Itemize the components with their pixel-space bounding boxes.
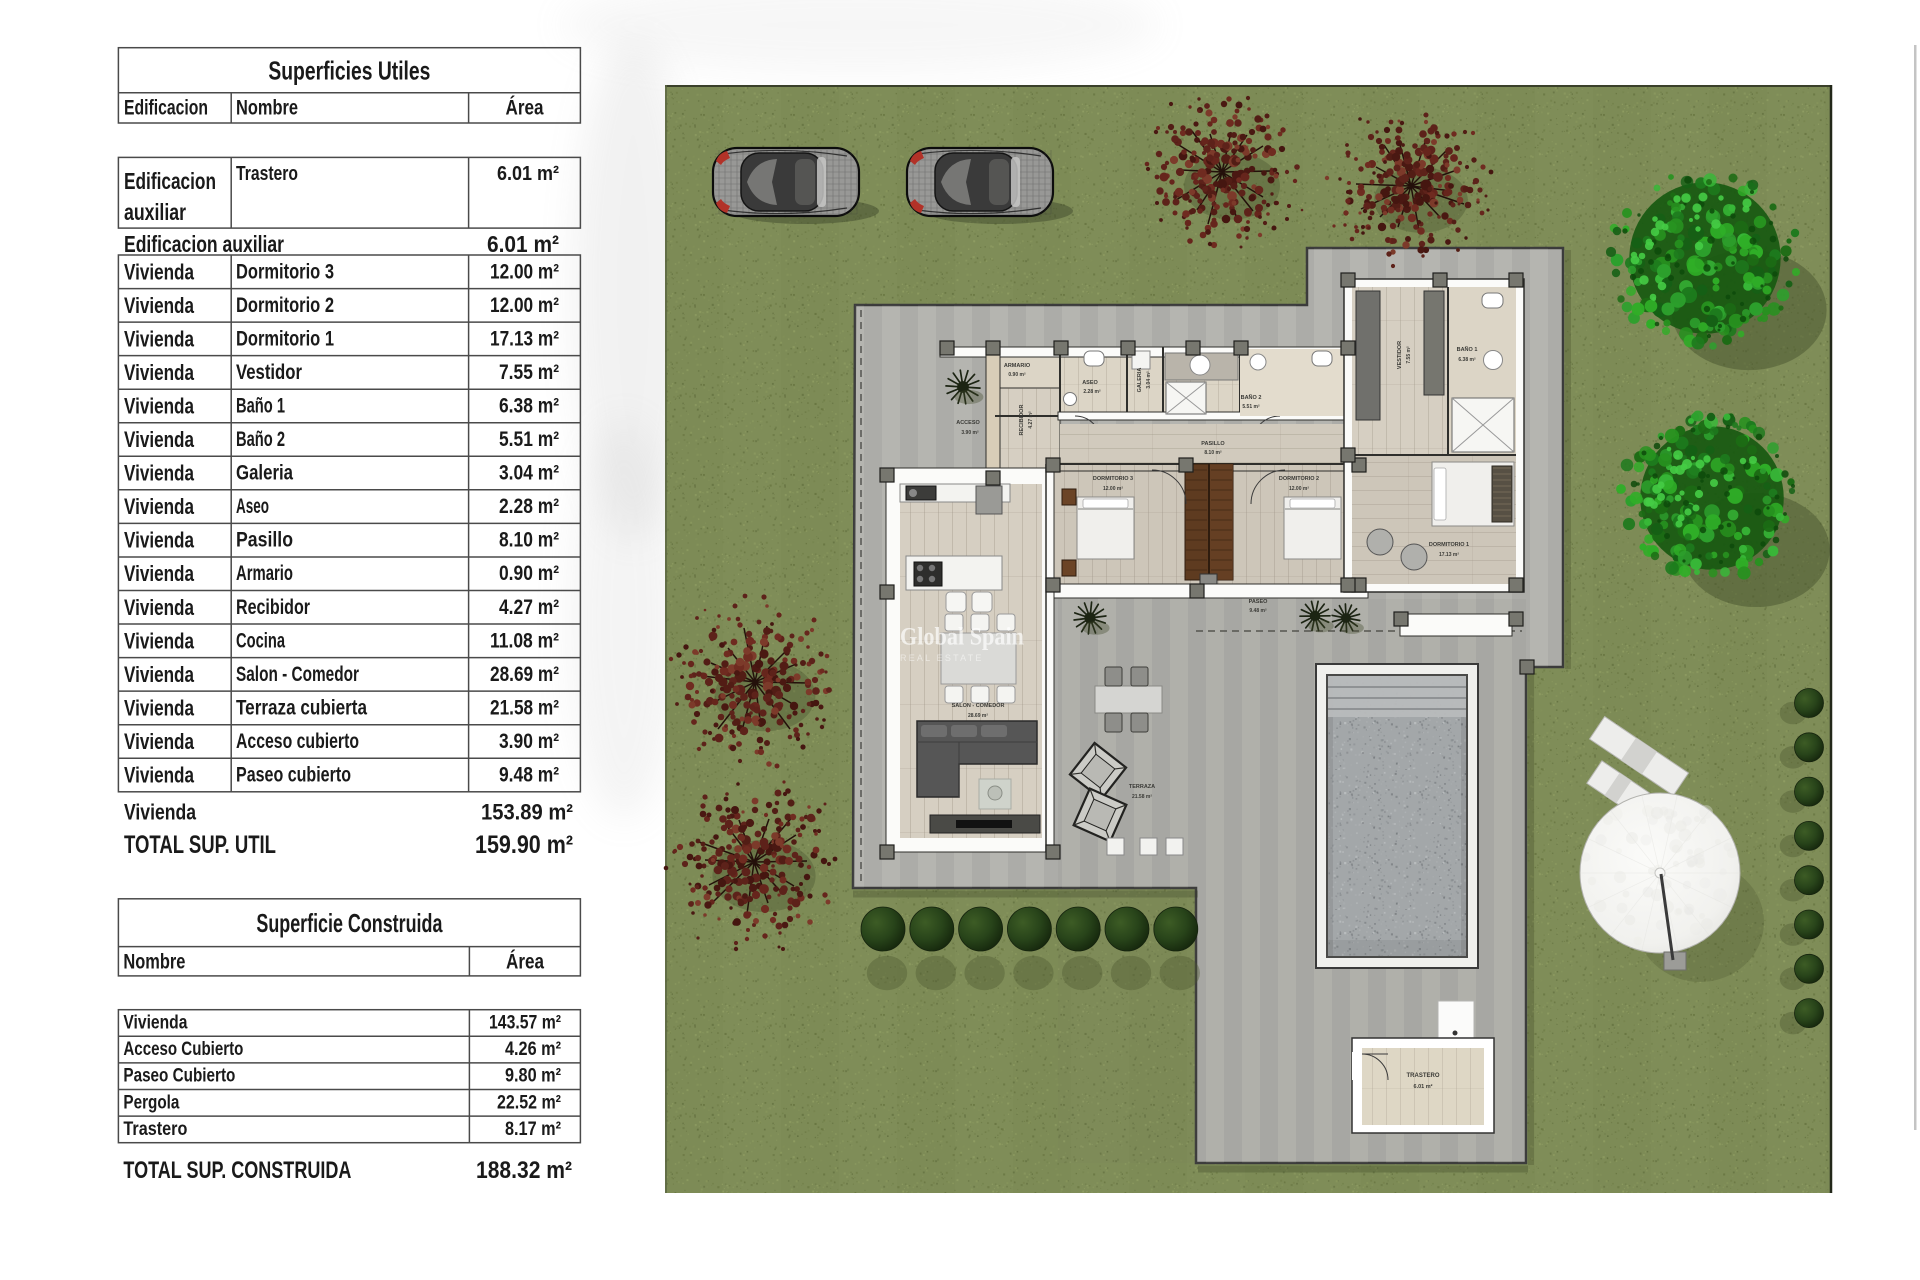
svg-text:6.01 m²: 6.01 m² (1414, 1083, 1433, 1090)
svg-text:GALERIA: GALERIA (1137, 368, 1143, 393)
svg-text:TERRAZA: TERRAZA (1129, 784, 1155, 790)
svg-text:28.69 m²: 28.69 m² (490, 663, 559, 686)
svg-text:12.00 m²: 12.00 m² (490, 260, 559, 283)
svg-text:Trastero: Trastero (236, 163, 298, 185)
svg-text:TOTAL SUP. CONSTRUIDA: TOTAL SUP. CONSTRUIDA (123, 1157, 351, 1184)
svg-text:21.58 m²: 21.58 m² (1132, 794, 1152, 800)
svg-text:2.28 m²: 2.28 m² (1083, 389, 1101, 395)
svg-text:6.01 m²: 6.01 m² (497, 163, 559, 185)
svg-text:Edificacion auxiliar: Edificacion auxiliar (124, 231, 284, 257)
svg-text:0.90 m²: 0.90 m² (1008, 372, 1026, 378)
svg-text:17.13 m²: 17.13 m² (490, 327, 559, 350)
svg-text:143.57 m²: 143.57 m² (489, 1013, 561, 1034)
svg-text:Área: Área (506, 950, 544, 973)
svg-text:Dormitorio 2: Dormitorio 2 (236, 294, 334, 317)
svg-text:auxiliar: auxiliar (124, 199, 186, 225)
svg-text:22.52 m²: 22.52 m² (497, 1092, 561, 1113)
svg-text:Edificacion: Edificacion (124, 168, 216, 194)
svg-text:3.04 m²: 3.04 m² (499, 462, 559, 485)
svg-text:Vivienda: Vivienda (124, 662, 195, 687)
svg-text:6.01 m²: 6.01 m² (487, 231, 559, 257)
svg-text:Acceso Cubierto: Acceso Cubierto (123, 1039, 243, 1060)
svg-text:Galeria: Galeria (236, 462, 293, 485)
svg-text:7.55 m²: 7.55 m² (499, 361, 559, 384)
svg-text:5.51 m²: 5.51 m² (499, 428, 559, 451)
svg-text:Vivienda: Vivienda (124, 729, 195, 754)
svg-text:TOTAL SUP. UTIL: TOTAL SUP. UTIL (124, 831, 276, 859)
svg-text:3.04 m²: 3.04 m² (1146, 371, 1152, 389)
svg-text:Vivienda: Vivienda (123, 1013, 187, 1034)
svg-text:Armario: Armario (236, 562, 293, 585)
svg-text:Vivienda: Vivienda (124, 595, 195, 620)
svg-text:4.27 m²: 4.27 m² (499, 596, 559, 619)
svg-text:Vivienda: Vivienda (124, 293, 195, 318)
svg-text:Vivienda: Vivienda (124, 494, 195, 519)
svg-text:Salon - Comedor: Salon - Comedor (236, 663, 359, 686)
svg-text:Recibidor: Recibidor (236, 596, 310, 619)
svg-text:Cocina: Cocina (236, 629, 285, 652)
svg-text:8.10 m²: 8.10 m² (499, 529, 559, 552)
svg-text:DORMITORIO 3: DORMITORIO 3 (1093, 476, 1133, 482)
svg-text:PASILLO: PASILLO (1201, 441, 1225, 447)
svg-text:Vivienda: Vivienda (124, 326, 195, 351)
svg-text:12.00 m²: 12.00 m² (490, 294, 559, 317)
svg-text:VESTIDOR: VESTIDOR (1397, 341, 1403, 369)
svg-text:TRASTERO: TRASTERO (1407, 1073, 1440, 1079)
svg-text:7.55 m²: 7.55 m² (1406, 346, 1412, 364)
svg-text:6.38 m²: 6.38 m² (1458, 357, 1476, 363)
svg-text:BAÑO 1: BAÑO 1 (1457, 346, 1478, 353)
svg-text:Vivienda: Vivienda (124, 394, 195, 419)
svg-text:11.08 m²: 11.08 m² (490, 629, 559, 652)
svg-text:Vivienda: Vivienda (124, 259, 195, 284)
svg-text:5.51 m²: 5.51 m² (1242, 404, 1260, 410)
svg-text:DORMITORIO 2: DORMITORIO 2 (1279, 476, 1319, 482)
svg-text:Dormitorio 3: Dormitorio 3 (236, 260, 334, 283)
svg-text:DORMITORIO 1: DORMITORIO 1 (1429, 542, 1469, 548)
svg-text:Vivienda: Vivienda (124, 360, 195, 385)
svg-text:12.00 m²: 12.00 m² (1103, 486, 1123, 492)
svg-text:Vivienda: Vivienda (124, 528, 195, 553)
svg-text:Edificacion: Edificacion (124, 97, 208, 120)
svg-text:REAL ESTATE: REAL ESTATE (900, 653, 984, 663)
svg-text:2.28 m²: 2.28 m² (499, 495, 559, 518)
svg-text:Vivienda: Vivienda (124, 561, 195, 586)
svg-text:Vivienda: Vivienda (124, 461, 195, 486)
svg-text:9.80 m²: 9.80 m² (505, 1066, 561, 1087)
svg-text:Vivienda: Vivienda (124, 800, 197, 825)
svg-text:3.90 m²: 3.90 m² (499, 730, 559, 753)
svg-text:Nombre: Nombre (123, 950, 185, 973)
svg-text:Nombre: Nombre (236, 97, 298, 120)
svg-text:17.13 m²: 17.13 m² (1439, 552, 1459, 558)
svg-text:153.89 m²: 153.89 m² (481, 800, 573, 825)
svg-text:4.26 m²: 4.26 m² (505, 1039, 561, 1060)
svg-text:Vivienda: Vivienda (124, 763, 195, 788)
svg-text:Superficie Construida: Superficie Construida (256, 908, 442, 938)
svg-text:9.48 m²: 9.48 m² (499, 764, 559, 787)
svg-text:PASEO: PASEO (1249, 599, 1269, 605)
svg-text:28.69 m²: 28.69 m² (968, 713, 988, 719)
svg-text:12.00 m²: 12.00 m² (1289, 486, 1309, 492)
svg-text:9.48 m²: 9.48 m² (1249, 608, 1267, 614)
svg-text:Vivienda: Vivienda (124, 427, 195, 452)
svg-text:21.58 m²: 21.58 m² (490, 696, 559, 719)
svg-text:SALON - COMEDOR: SALON - COMEDOR (952, 703, 1005, 709)
svg-text:Baño 2: Baño 2 (236, 428, 285, 451)
svg-text:Aseo: Aseo (236, 495, 269, 518)
svg-text:188.32 m²: 188.32 m² (476, 1157, 572, 1184)
svg-text:6.38 m²: 6.38 m² (499, 395, 559, 418)
svg-text:ASEO: ASEO (1082, 380, 1098, 386)
svg-text:Superficies Utiles: Superficies Utiles (268, 56, 430, 86)
svg-text:Dormitorio 1: Dormitorio 1 (236, 327, 334, 350)
svg-text:Trastero: Trastero (123, 1119, 187, 1140)
svg-text:Vivienda: Vivienda (124, 695, 195, 720)
svg-text:ARMARIO: ARMARIO (1004, 363, 1031, 369)
svg-text:4.27 m²: 4.27 m² (1028, 411, 1034, 429)
svg-text:Pasillo: Pasillo (236, 529, 293, 552)
svg-text:3.90 m²: 3.90 m² (961, 430, 979, 436)
svg-text:Pergola: Pergola (123, 1092, 179, 1113)
svg-text:BAÑO 2: BAÑO 2 (1241, 394, 1262, 401)
svg-text:Global Spain: Global Spain (900, 624, 1024, 651)
svg-text:Baño 1: Baño 1 (236, 395, 285, 418)
svg-text:Área: Área (506, 97, 544, 120)
svg-text:0.90 m²: 0.90 m² (499, 562, 559, 585)
svg-text:Terraza cubierta: Terraza cubierta (236, 696, 367, 719)
svg-text:Vivienda: Vivienda (124, 628, 195, 653)
svg-text:Paseo Cubierto: Paseo Cubierto (123, 1066, 235, 1087)
svg-text:8.10 m²: 8.10 m² (1204, 450, 1222, 456)
svg-text:Vestidor: Vestidor (236, 361, 302, 384)
svg-text:Acceso cubierto: Acceso cubierto (236, 730, 359, 753)
svg-text:8.17 m²: 8.17 m² (505, 1119, 561, 1140)
svg-text:ACCESO: ACCESO (956, 420, 980, 426)
svg-text:Paseo cubierto: Paseo cubierto (236, 764, 351, 787)
svg-text:RECIBIDOR: RECIBIDOR (1019, 405, 1025, 436)
svg-text:159.90 m²: 159.90 m² (475, 831, 573, 859)
